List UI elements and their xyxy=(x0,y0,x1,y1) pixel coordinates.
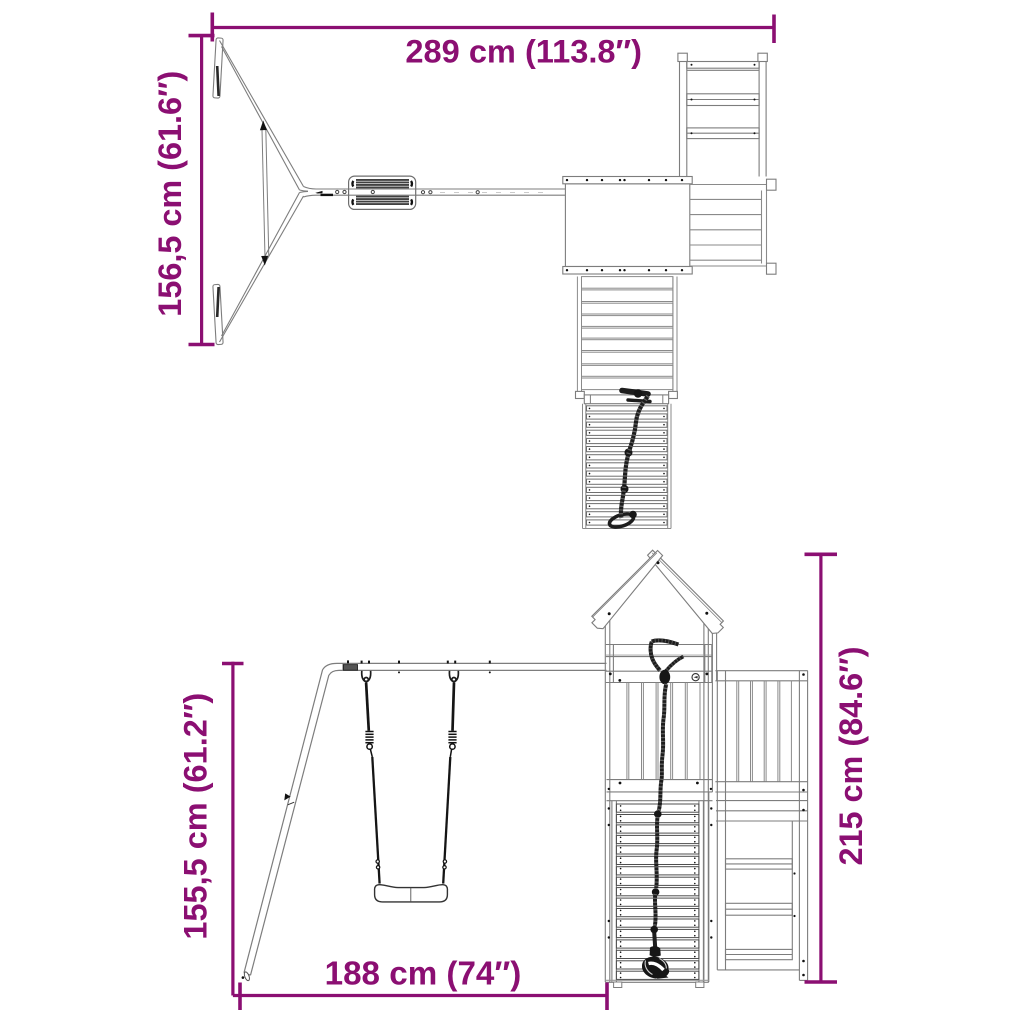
svg-text:215 cm (84.6″): 215 cm (84.6″) xyxy=(833,647,869,866)
svg-text:289 cm (113.8″): 289 cm (113.8″) xyxy=(405,32,642,69)
svg-text:188 cm (74″): 188 cm (74″) xyxy=(325,956,522,993)
svg-text:155,5 cm (61.2″): 155,5 cm (61.2″) xyxy=(178,693,214,940)
svg-text:156,5 cm (61.6″): 156,5 cm (61.6″) xyxy=(152,71,188,317)
